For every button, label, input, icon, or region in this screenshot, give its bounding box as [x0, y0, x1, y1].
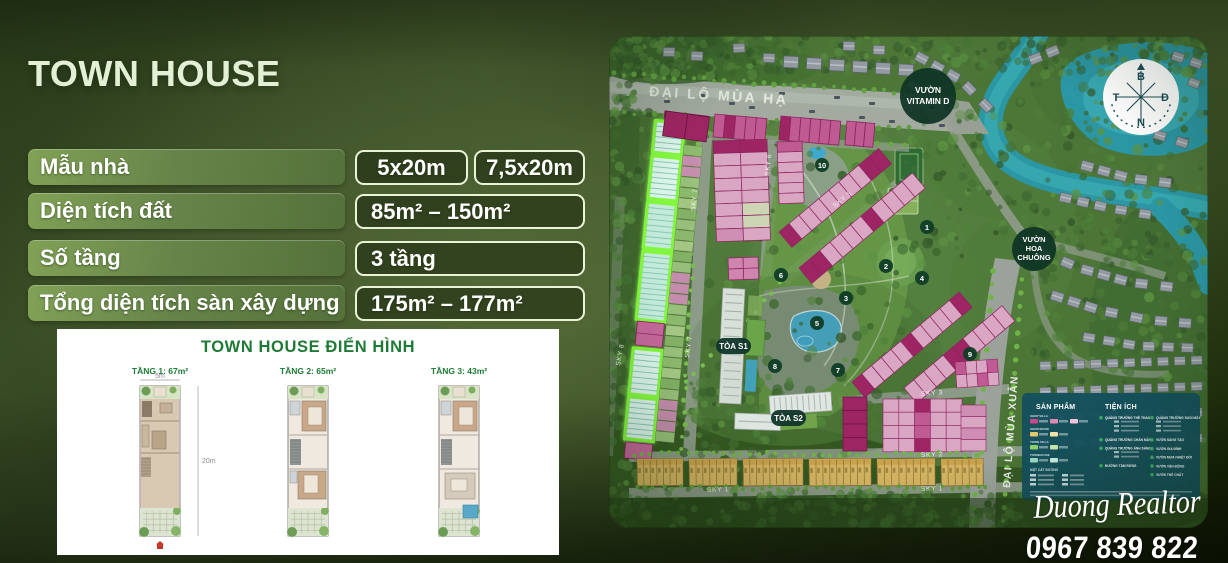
svg-text:5m: 5m: [155, 373, 165, 380]
svg-text:20m: 20m: [202, 458, 216, 465]
